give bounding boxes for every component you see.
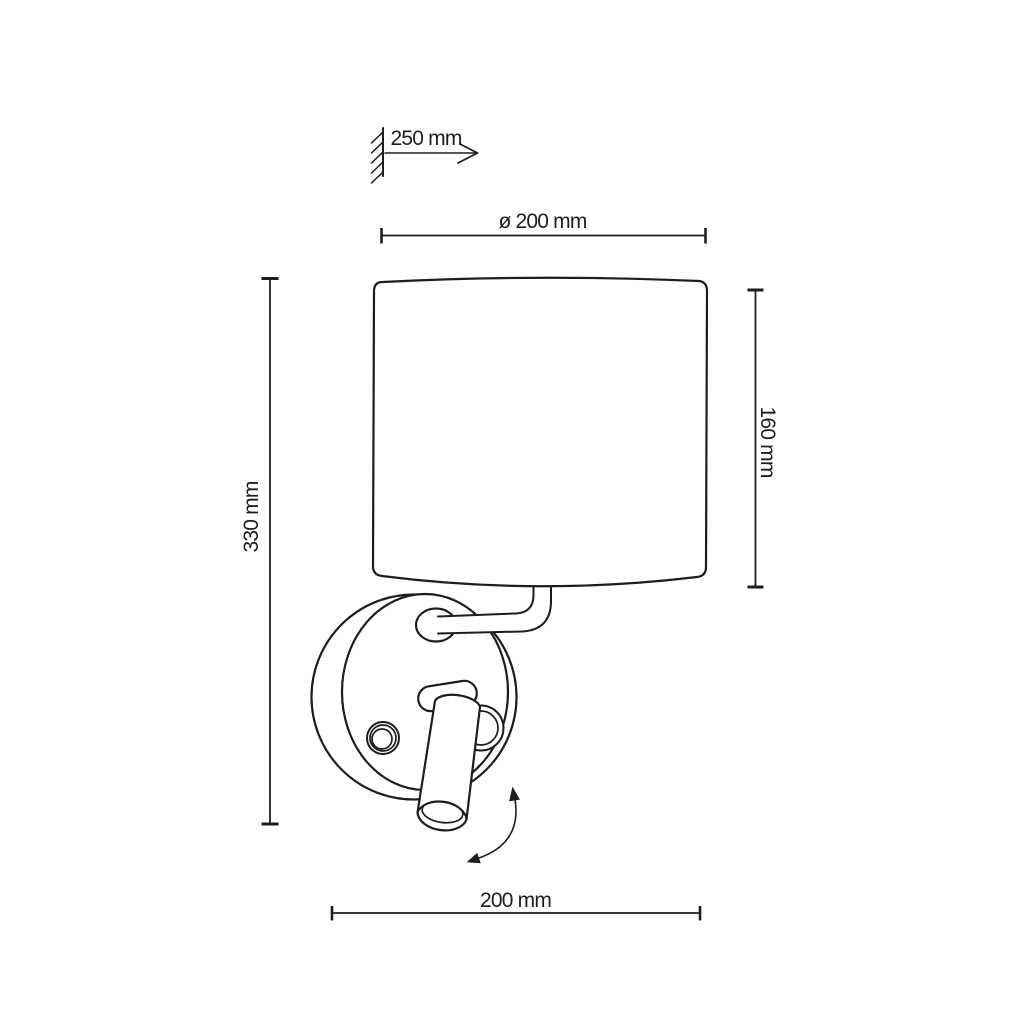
overall-height-label: 330 mm xyxy=(240,481,263,552)
overall-width-label: 200 mm xyxy=(480,889,551,912)
wall-hatching xyxy=(372,132,384,183)
wall-lamp-figure xyxy=(312,278,708,863)
shade-height-dimension: 160 mm xyxy=(748,290,780,587)
overall-height-dimension: 330 mm xyxy=(240,279,279,825)
technical-drawing-canvas: 250 mm ø 200 mm 330 mm 160 mm 200 mm xyxy=(0,0,1024,1024)
wall-offset-label: 250 mm xyxy=(390,127,461,150)
wall-offset-dimension: 250 mm xyxy=(372,127,478,183)
shade-diameter-label: ø 200 mm xyxy=(498,210,586,233)
rotation-arrow-arc xyxy=(479,799,516,858)
shade-diameter-dimension: ø 200 mm xyxy=(382,210,706,244)
rotation-arrow xyxy=(467,787,520,864)
rotation-arrow-head-down xyxy=(467,853,481,863)
wall-mount-symbol xyxy=(372,128,384,183)
wall-lamp-drawing: 250 mm ø 200 mm 330 mm 160 mm 200 mm xyxy=(0,0,1024,1024)
lampshade xyxy=(373,278,707,587)
shade-height-label: 160 mm xyxy=(756,406,779,477)
overall-width-dimension: 200 mm xyxy=(332,889,700,921)
rotation-arrow-head-up xyxy=(509,787,520,802)
